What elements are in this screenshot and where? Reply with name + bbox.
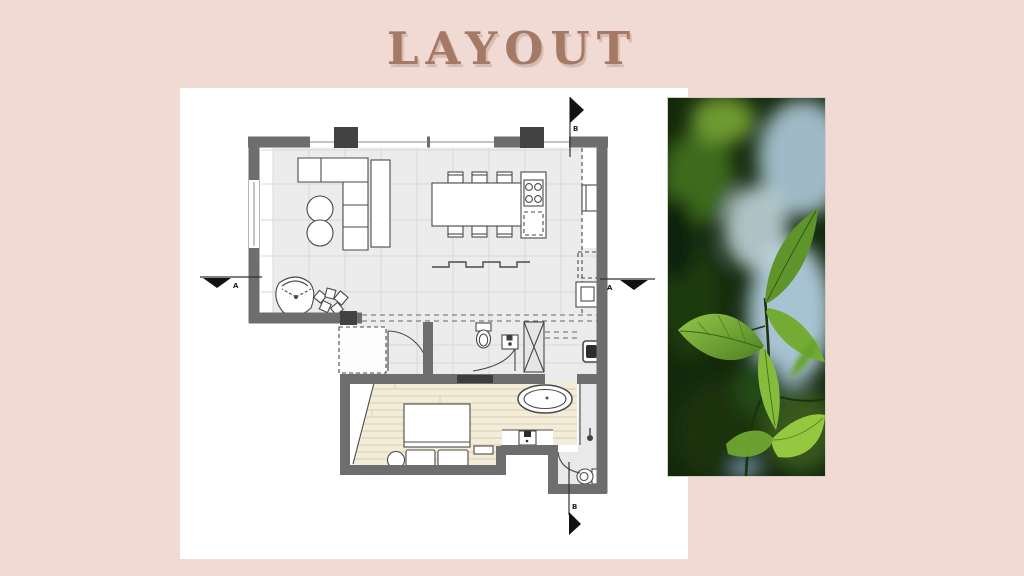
svg-text:B: B (572, 503, 577, 511)
svg-text:A: A (233, 282, 239, 290)
bathtub (518, 385, 572, 413)
coffee-table (307, 220, 333, 246)
svg-text:A: A (607, 284, 613, 292)
green-leaves-photo (668, 98, 825, 476)
vanity-sink (502, 430, 553, 445)
section-marker-a-right: A (600, 279, 655, 292)
coffee-table (307, 196, 333, 222)
floor-plan: A A B B (0, 0, 1024, 576)
lounge-chair (276, 277, 314, 316)
slide-background: LAYOUT (0, 0, 1024, 576)
svg-text:B: B (573, 125, 578, 133)
kitchen-island (521, 172, 546, 238)
media-console (371, 160, 390, 247)
bed-bench (474, 446, 493, 454)
shaft-column (524, 322, 544, 372)
